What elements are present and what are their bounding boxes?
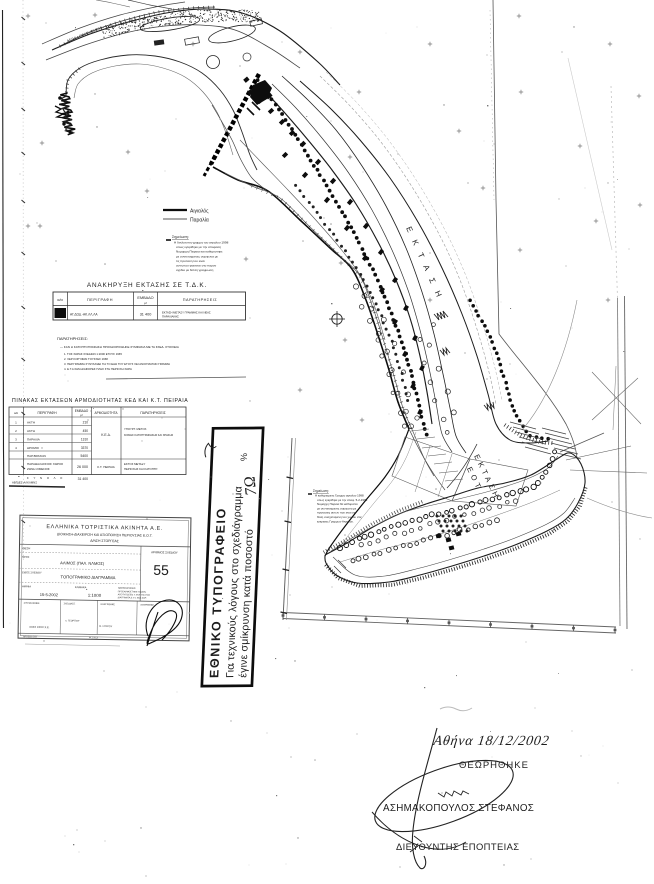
svg-text:α/α: α/α: [14, 411, 19, 415]
svg-text:ΚΛΙΜΑΚΑ: ΚΛΙΜΑΚΑ: [75, 585, 87, 589]
svg-text:τις προταση του ειναι: τις προταση του ειναι: [176, 259, 205, 263]
svg-text:ΗΜ/ΝΙΑ: ΗΜ/ΝΙΑ: [22, 584, 31, 588]
svg-text:ΠΑΡΑΛΙΑΚΗΣ: ΠΑΡΑΛΙΑΚΗΣ: [162, 315, 179, 319]
svg-text:26 000: 26 000: [77, 465, 88, 469]
svg-text:15-5-2002: 15-5-2002: [40, 592, 59, 597]
svg-text:1: 1: [15, 421, 17, 425]
svg-text:Κ.Τ. ΠΕΙΡΑΙΑ: Κ.Τ. ΠΕΙΡΑΙΑ: [97, 465, 115, 469]
svg-text:Θ. ΣΠΥΡΟΥ: Θ. ΣΠΥΡΟΥ: [99, 625, 112, 628]
svg-text:Κ.Ε.Δ.: Κ.Ε.Δ.: [101, 433, 111, 437]
svg-text:ΠΡΟΣΑΡΜΟΣΤΗΚΕ Π.ΔΙΟΝ.: ΠΡΟΣΑΡΜΟΣΤΗΚΕ Π.ΔΙΟΝ.: [118, 590, 147, 593]
svg-text:μ²: μ²: [144, 301, 147, 305]
svg-text:ΑΓ.ΔΩΔ.-ΑΚ.ΛΛ.ΛΑ: ΑΓ.ΔΩΔ.-ΑΚ.ΛΛ.ΛΑ: [70, 313, 98, 317]
svg-text:Σημείωση:: Σημείωση:: [172, 235, 189, 239]
svg-text:ΠΑΡΑΘΑΛΑΣΣΙΟΣ ΧΩΡΟΣ: ΠΑΡΑΘΑΛΑΣΣΙΟΣ ΧΩΡΟΣ: [27, 462, 63, 466]
svg-text:ΑΣΗΜΑΚΟΠΟΥΛΟΣ ΣΤΕΦΑΝΟΣ: ΑΣΗΜΑΚΟΠΟΥΛΟΣ ΣΤΕΦΑΝΟΣ: [383, 803, 534, 814]
svg-text:2: 2: [15, 429, 17, 433]
svg-text:ΧΧΧΧ ΧΧΧΧ Χ.Ε.: ΧΧΧΧ ΧΧΧΧ Χ.Ε.: [29, 625, 50, 629]
svg-text:5400: 5400: [80, 454, 88, 458]
svg-text:σχεδιο με διπλη γραμμωση: σχεδιο με διπλη γραμμωση: [176, 268, 214, 272]
svg-text:210: 210: [83, 421, 89, 425]
svg-text:4: 4: [15, 446, 17, 450]
svg-text:ΣΥΝΤΑΧΘΗΚΕ: ΣΥΝΤΑΧΘΗΚΕ: [24, 602, 40, 605]
svg-text:%: %: [239, 453, 249, 461]
svg-text:ΕΚΤΑΣΗ ΜΕΤΑΞΥ ΓΡΑΜΜΗΣ ΚΑΙ ΝΕΑΣ: ΕΚΤΑΣΗ ΜΕΤΑΞΥ ΓΡΑΜΜΗΣ ΚΑΙ ΝΕΑΣ: [162, 311, 211, 315]
svg-text:ΝΕΟΣ: ΝΕΟΣ: [22, 555, 30, 559]
svg-text:4. Ε.Τ.Α ΣΗΜ.ΔΙΑΦΟΡΕΣ ΠΛΗΣ ΣΤΗ: 4. Ε.Τ.Α ΣΗΜ.ΔΙΑΦΟΡΕΣ ΠΛΗΣ ΣΤΗ ΠΕΡΙΟΧΗ Χ…: [64, 367, 132, 371]
svg-text:ΑΠΟΤΥΠΩΣΕΙΣ Τ. ΕΟΤ ΤΜ. ΕΩΣ: ΑΠΟΤΥΠΩΣΕΙΣ Τ. ΕΟΤ ΤΜ. ΕΩΣ: [118, 593, 151, 597]
svg-text:ΑΝΑΚΗΡΥΞΗ ΕΚΤΑΣΗΣ ΣΕ Τ.Δ.Κ.: ΑΝΑΚΗΡΥΞΗ ΕΚΤΑΣΗΣ ΣΕ Τ.Δ.Κ.: [87, 282, 207, 289]
svg-text:αυτη που φαινεται στο παρον: αυτη που φαινεται στο παρον: [176, 264, 217, 268]
svg-text:Αιγιαλός: Αιγιαλός: [190, 208, 209, 215]
svg-text:31 400: 31 400: [78, 477, 88, 481]
svg-text:ΔΙΟΙΚΗΣΗ-ΔΙΑΧΕΙΡΙΣΗ ΚΑΙ ΑΞΙΟ: ΔΙΟΙΚΗΣΗ-ΔΙΑΧΕΙΡΙΣΗ ΚΑΙ ΑΞΙΟΠΟΙΗΣΗ ΠΕΡΙΟ…: [57, 532, 153, 538]
svg-text:ΠΑΡΑΤΗΡΗΣΕΙΣ: ΠΑΡΑΤΗΡΗΣΕΙΣ: [140, 411, 165, 415]
svg-text:ΑΡΜΟΔΙΟΤΗΤΑ: ΑΡΜΟΔΙΟΤΗΤΑ: [95, 411, 119, 415]
svg-text:ΕΚΤΟΣ ΜΕΤΑΞΥ: ΕΚΤΟΣ ΜΕΤΑΞΥ: [124, 462, 145, 466]
svg-text:ΚΟΙΝΗΣ ΚΑΤΟΠΤΡΑΦΗΚΗΣ ΚΑΙ ΧΡΗΣ: ΚΟΙΝΗΣ ΚΑΤΟΠΤΡΑΦΗΚΗΣ ΚΑΙ ΧΡΗΣΗΣ: [124, 433, 174, 437]
svg-text:ΑΚΤΗ: ΑΚΤΗ: [27, 421, 35, 425]
svg-text:ΔΙΕΥΘΥΝΤΗΣ ΕΠΟΠΤΕΙΑΣ: ΔΙΕΥΘΥΝΤΗΣ ΕΠΟΠΤΕΙΑΣ: [396, 841, 519, 852]
svg-text:ΠΑΡΑΛΙΑ: ΠΑΡΑΛΙΑ: [27, 438, 40, 442]
svg-text:Η διπλοτυπη γραμμη του αιγιαλο: Η διπλοτυπη γραμμη του αιγιαλου 1998: [174, 241, 229, 245]
svg-text:Σημείωση:: Σημείωση:: [313, 489, 329, 493]
svg-text:ΛΕΩΦ. ΠΟΣΕΙΔΩΝΟΣ: ΛΕΩΦ. ΠΟΣΕΙΔΩΝΟΣ: [66, 25, 103, 42]
svg-text:3: 3: [15, 438, 17, 442]
svg-text:μ²: μ²: [80, 413, 83, 417]
svg-text:1:1000: 1:1000: [88, 593, 102, 598]
svg-text:ΑΡΧΕΙΟ ΕΟΤ: ΑΡΧΕΙΟ ΕΟΤ: [23, 635, 38, 638]
svg-text:3370: 3370: [81, 446, 88, 450]
svg-text:α/α: α/α: [57, 298, 63, 302]
svg-text:ΔΡΟΜΟΙ: ΔΡΟΜΟΙ: [27, 446, 39, 450]
svg-text:Φ. 1-0.3: Φ. 1-0.3: [89, 636, 98, 639]
svg-text:ΕΙΔΟΣ ΣΧΕΔΙΟΥ: ΕΙΔΟΣ ΣΧΕΔΙΟΥ: [22, 570, 42, 574]
svg-text:ΠΑΡΑΤΗΡΗΣΕΙΣ: ΠΑΡΑΤΗΡΗΣΕΙΣ: [118, 587, 136, 590]
svg-text:ΣΧΕΔΙΑΣΕ: ΣΧΕΔΙΑΣΕ: [64, 602, 76, 605]
svg-text:ΕΜΒΑΔΟ: ΕΜΒΑΔΟ: [137, 296, 153, 300]
svg-text:ΠΕΡΙΓΡΑΦΗ: ΠΕΡΙΓΡΑΦΗ: [37, 411, 57, 415]
svg-text:31 400: 31 400: [140, 313, 152, 317]
svg-text:ΔΙΑΓΡ/ΜΑΤΑ Δ.Τ.Υ. ΧΕΛ ΧΩΡ.: ΔΙΑΓΡ/ΜΑΤΑ Δ.Τ.Υ. ΧΕΛ ΧΩΡ.: [118, 596, 147, 599]
svg-text:Νομαρχη Πειραια και καθοριστηκ: Νομαρχη Πειραια και καθοριστηκε: [176, 250, 223, 254]
svg-text:Αθήνα 18/12/2002: Αθήνα 18/12/2002: [431, 733, 550, 749]
svg-text:ΕΓΚΡΙΘΗΚΕ: ΕΓΚΡΙΘΗΚΕ: [141, 604, 155, 607]
svg-text:ΠΑΡΑΤΗΡΗΣΕΙΣ: ΠΑΡΑΤΗΡΗΣΕΙΣ: [183, 298, 218, 302]
svg-text:ΠΑΡ.ΒΡΑΧΩΝ: ΠΑΡ.ΒΡΑΧΩΝ: [27, 454, 46, 458]
svg-text:οπως εγκριθηκε με την αποφαση: οπως εγκριθηκε με την αποφαση: [176, 245, 221, 249]
svg-text:ΑΛΙΜΟΣ (ΠΑΛ. ΝΛΜΟΣ): ΑΛΙΜΟΣ (ΠΑΛ. ΝΛΜΟΣ): [60, 560, 105, 566]
svg-text:— ΣΑΝ Η ΚΑΤΟΠΤΟΓΡΑΦΗΚΗ ΠΡΟΣΔΙ: — ΣΑΝ Η ΚΑΤΟΠΤΟΓΡΑΦΗΚΗ ΠΡΟΣΔΙΟΡΙΣΘΗΚΕ ΣΥ…: [60, 345, 179, 349]
svg-text:ΕΛΕΓΧΘΗΚΕ: ΕΛΕΓΧΘΗΚΕ: [101, 603, 116, 606]
svg-text:1310: 1310: [81, 438, 88, 442]
svg-text:ΑΡΙΘΜΟΣ ΣΧΕΔΙΟΥ: ΑΡΙΘΜΟΣ ΣΧΕΔΙΟΥ: [151, 550, 178, 554]
svg-text:ΑΚΤΗ: ΑΚΤΗ: [27, 429, 35, 433]
svg-text:εγκρισεις Γραμμων Αιγιαλου.: εγκρισεις Γραμμων Αιγιαλου.: [317, 519, 354, 523]
svg-text:ΕΛΛΗΝΙΚΑ ΤΟΤΡΙΣΤΙΚΑ ΑΚΙΝΗΤΑ: ΕΛΛΗΝΙΚΑ ΤΟΤΡΙΣΤΙΚΑ ΑΚΙΝΗΤΑ Α.Ε.: [46, 524, 163, 532]
svg-text:ΠΕΡΙΟΧΗΣ ΚΑΙ ΚΑΤΟΠΤΡ.: ΠΕΡΙΟΧΗΣ ΚΑΙ ΚΑΤΟΠΤΡ.: [124, 467, 158, 471]
svg-text:ΠΙΝΑΚΑΣ ΕΚΤΑΣΕΩΝ ΑΡΜΟΔΙΟΤΗΤΑ: ΠΙΝΑΚΑΣ ΕΚΤΑΣΕΩΝ ΑΡΜΟΔΙΟΤΗΤΑΣ ΚΕΔ ΚΑΙ Κ.…: [12, 398, 188, 404]
svg-text:με συντεταγμενες συμφωνα με: με συντεταγμενες συμφωνα με: [176, 254, 219, 258]
svg-text:Σ Υ Ν Ο Λ Ο: Σ Υ Ν Ο Λ Ο: [27, 476, 64, 480]
svg-text:Δ/ΝΣΗ ΣΤΟΡΓΕΑΣ: Δ/ΝΣΗ ΣΤΟΡΓΕΑΣ: [90, 539, 119, 543]
svg-text:κ. ΓΕΩΡΓΙΟΥ: κ. ΓΕΩΡΓΙΟΥ: [65, 619, 80, 622]
svg-text:Παραλία: Παραλία: [190, 218, 209, 224]
svg-text:ΖΩΝΗ ΛΙΜΕΝΟΣ: ΖΩΝΗ ΛΙΜΕΝΟΣ: [27, 467, 50, 471]
svg-text:1. ΤΟΣ ΧΩΡΑΣ ΣΧΕΔΙΩΝ 1:2000 ΕΤ: 1. ΤΟΣ ΧΩΡΑΣ ΣΧΕΔΙΩΝ 1:2000 ΕΤΟΥΣ 1965: [64, 352, 122, 356]
svg-text:450: 450: [83, 429, 89, 433]
svg-text:3. ΠΕΡ.ΓΡΑΜΜΑ ΣΥΝΤΑΧΘΕΙ ΓΙΑ ΤΟ: 3. ΠΕΡ.ΓΡΑΜΜΑ ΣΥΝΤΑΧΘΕΙ ΓΙΑ ΤΟ ΕΔΩ ΤΟΥ Ε…: [64, 362, 170, 366]
svg-text:ΠΑΡΑΤΗΡΗΣΕΙΣ:: ΠΑΡΑΤΗΡΗΣΕΙΣ:: [57, 336, 88, 341]
svg-text:55: 55: [153, 562, 169, 578]
svg-text:ΥΠΟΥΡΓ. ΜΕΤΟΧ.: ΥΠΟΥΡΓ. ΜΕΤΟΧ.: [124, 427, 147, 431]
svg-text:7Ω: 7Ω: [241, 475, 260, 497]
svg-text:ΠΕΡΙΓΡΑΦΗ: ΠΕΡΙΓΡΑΦΗ: [87, 298, 113, 302]
svg-text:ΤΟΠΟΓΡΑΦΙΚΟ ΔΙΑΓΡΑΜΜΑ: ΤΟΠΟΓΡΑΦΙΚΟ ΔΙΑΓΡΑΜΜΑ: [60, 574, 115, 580]
svg-text:ΘΕΣΗ: ΘΕΣΗ: [22, 546, 30, 550]
svg-text:2. ΧΕΡ ΚΟΡΥΦΩΝ ΤΟΥΣΧΕΣ 1968: 2. ΧΕΡ ΚΟΡΥΦΩΝ ΤΟΥΣΧΕΣ 1968: [64, 357, 108, 361]
svg-text:ΑΒΓΔΕΖ-ΑΛΚΛΜΝΞ: ΑΒΓΔΕΖ-ΑΛΚΛΜΝΞ: [12, 481, 37, 485]
